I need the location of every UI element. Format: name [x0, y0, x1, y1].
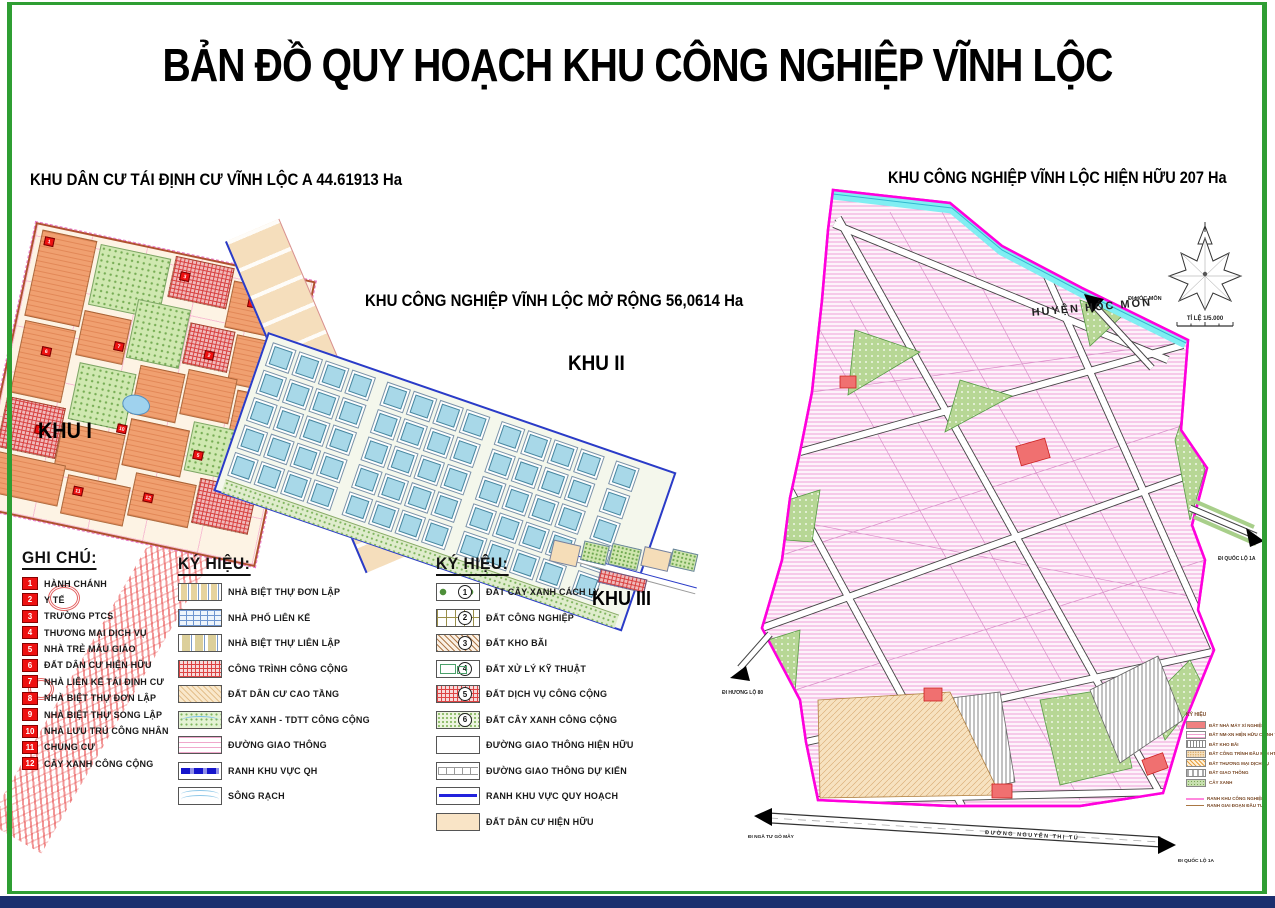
planning-map-canvas: BẢN ĐỒ QUY HOẠCH KHU CÔNG NGHIỆP VĨNH LỘ… [0, 0, 1275, 908]
legend-symbol-item: NHÀ BIỆT THỰ ĐƠN LẬP [178, 583, 370, 601]
legend-symbol-item: 3ĐẤT KHO BÃI [436, 634, 634, 652]
scale-bar: TỈ LỆ 1/5.000 [1177, 314, 1233, 326]
mini-legend-item: ĐẤT CÔNG TRÌNH ĐẦU MỐI HT [1186, 750, 1268, 758]
legend-swatch [178, 736, 222, 754]
legend-symbol-item: ĐƯỜNG GIAO THÔNG DỰ KIẾN [436, 762, 634, 780]
legend-symbol-item: RANH KHU VỰC QUY HOẠCH [436, 787, 634, 805]
legend-swatch [178, 711, 222, 729]
mini-legend-item: ĐẤT KHO BÃI [1186, 740, 1268, 748]
legend-note-item: 11CHUNG CƯ [22, 741, 169, 754]
mini-legend-item: ĐẤT NM-XN HIỆN HỮU CHỈNH TRANG [1186, 731, 1268, 739]
legend-symbol-item: SÔNG RẠCH [178, 787, 370, 805]
legend-note-item: 4THƯƠNG MẠI DỊCH VỤ [22, 626, 169, 639]
exit-road-sw: ĐI HƯƠNG LỘ 80 [722, 634, 770, 696]
legend-note-item: 10NHÀ LƯU TRÚ CÔNG NHÂN [22, 725, 169, 738]
direction-arrow-sw [730, 666, 750, 681]
legend-note-item: 12CÂY XANH CÔNG CỘNG [22, 757, 169, 770]
legend-swatch [178, 583, 222, 601]
mini-legend-item: CÂY XANH [1186, 779, 1268, 787]
legend-note-item: 5NHÀ TRẺ MẪU GIÁO [22, 643, 169, 656]
legend-symbol-item: ĐƯỜNG GIAO THÔNG [178, 736, 370, 754]
legend-swatch: 1 [436, 583, 480, 601]
arrow-sw-label: ĐI HƯƠNG LỘ 80 [722, 688, 763, 696]
mini-legend-item: ĐẤT NHÀ MÁY XÍ NGHIỆP [1186, 721, 1268, 729]
legend-swatch: 2 [436, 609, 480, 627]
scale-label: TỈ LỆ 1/5.000 [1187, 314, 1224, 322]
legend-swatch [436, 736, 480, 754]
legend-swatch: 4 [436, 660, 480, 678]
legend-swatch [436, 762, 480, 780]
legend-symbol-item: 1ĐẤT CÂY XANH CÁCH LY [436, 583, 634, 601]
legend-swatch [178, 787, 222, 805]
legend-swatch: 5 [436, 685, 480, 703]
mini-legend-line-item: RANH KHU CÔNG NGHIỆP [1186, 796, 1268, 801]
legend-note-item: 7NHÀ LIÊN KẾ TÁI ĐỊNH CƯ [22, 675, 169, 688]
arrow-br-label: ĐI QUỐC LỘ 1A [1178, 856, 1215, 864]
mini-legend-item: ĐẤT GIAO THÔNG [1186, 769, 1268, 777]
legend-symbol-item: ĐẤT DÂN CƯ CAO TẦNG [178, 685, 370, 703]
legend-symbol-item: 5ĐẤT DỊCH VỤ CÔNG CỘNG [436, 685, 634, 703]
legend-symbols-1: KÝ HIỆU: NHÀ BIỆT THỰ ĐƠN LẬPNHÀ PHỐ LIÊ… [178, 554, 370, 813]
mini-legend-item: ĐẤT THƯƠNG MẠI DỊCH VỤ [1186, 759, 1268, 767]
compass-rose [1169, 222, 1241, 310]
frame-right [1262, 2, 1267, 892]
legend-swatch: 6 [436, 711, 480, 729]
mini-legend: KÝ HIỆU ĐẤT NHÀ MÁY XÍ NGHIỆPĐẤT NM-XN H… [1186, 712, 1268, 809]
legend-note-item: 8NHÀ BIỆT THỰ ĐƠN LẬP [22, 692, 169, 705]
bottom-navy-bar [0, 896, 1275, 908]
legend-swatch [178, 685, 222, 703]
legend-symbol-item: 2ĐẤT CÔNG NGHIỆP [436, 609, 634, 627]
legend-symbols1-title: KÝ HIỆU: [178, 554, 250, 576]
legend-symbols-2: KÝ HIỆU: 1ĐẤT CÂY XANH CÁCH LY2ĐẤT CÔNG … [436, 554, 634, 838]
frame-left [7, 2, 12, 892]
legend-symbol-item: 6ĐẤT CÂY XANH CÔNG CỘNG [436, 711, 634, 729]
legend-swatch [436, 787, 480, 805]
legend-swatch [178, 762, 222, 780]
legend-symbol-item: NHÀ PHỐ LIÊN KẾ [178, 609, 370, 627]
legend-symbol-item: CÂY XANH - TDTT CÔNG CỘNG [178, 711, 370, 729]
bottom-road: ĐI NGÃ TƯ GÒ MÂY ĐI QUỐC LỘ 1A ĐƯỜNG NGU… [748, 808, 1215, 864]
legend-swatch [178, 609, 222, 627]
legend-notes-title: GHI CHÚ: [22, 548, 97, 570]
direction-arrow-bottom-right [1158, 836, 1176, 854]
legend-swatch [178, 660, 222, 678]
legend-symbol-item: NHÀ BIỆT THỰ LIÊN LẬP [178, 634, 370, 652]
legend-symbol-item: ĐƯỜNG GIAO THÔNG HIỆN HỮU [436, 736, 634, 754]
legend-swatch: 3 [436, 634, 480, 652]
mini-legend-line-item: RANH GIAI ĐOẠN ĐẦU TƯ [1186, 803, 1268, 808]
frame-top [7, 2, 1267, 5]
arrow-bl-label: ĐI NGÃ TƯ GÒ MÂY [748, 832, 795, 840]
legend-symbol-item: ĐẤT DÂN CƯ HIỆN HỮU [436, 813, 634, 831]
legend-symbol-item: RANH KHU VỰC QH [178, 762, 370, 780]
legend-note-item: 6ĐẤT DÂN CƯ HIỆN HỮU [22, 659, 169, 672]
legend-symbols2-title: KÝ HIỆU: [436, 554, 508, 576]
legend-note-item: 3TRƯỜNG PTCS [22, 610, 169, 623]
legend-note-item: 2Y TẾ [22, 593, 169, 606]
legend-symbol-item: 4ĐẤT XỬ LÝ KỸ THUẬT [436, 660, 634, 678]
mini-legend-title: KÝ HIỆU [1186, 712, 1268, 718]
legend-swatch [436, 813, 480, 831]
legend-symbol-item: CÔNG TRÌNH CÔNG CỘNG [178, 660, 370, 678]
direction-arrow-bottom-left [754, 808, 772, 826]
arrow-right-label: ĐI QUỐC LỘ 1A [1218, 554, 1256, 562]
legend-swatch [178, 634, 222, 652]
legend-note-item: 9NHÀ BIỆT THỰ SONG LẬP [22, 708, 169, 721]
legend-notes: GHI CHÚ: 1HÀNH CHÁNH2Y TẾ3TRƯỜNG PTCS4TH… [22, 548, 169, 774]
legend-note-item: 1HÀNH CHÁNH [22, 577, 169, 590]
frame-bottom [7, 891, 1267, 894]
